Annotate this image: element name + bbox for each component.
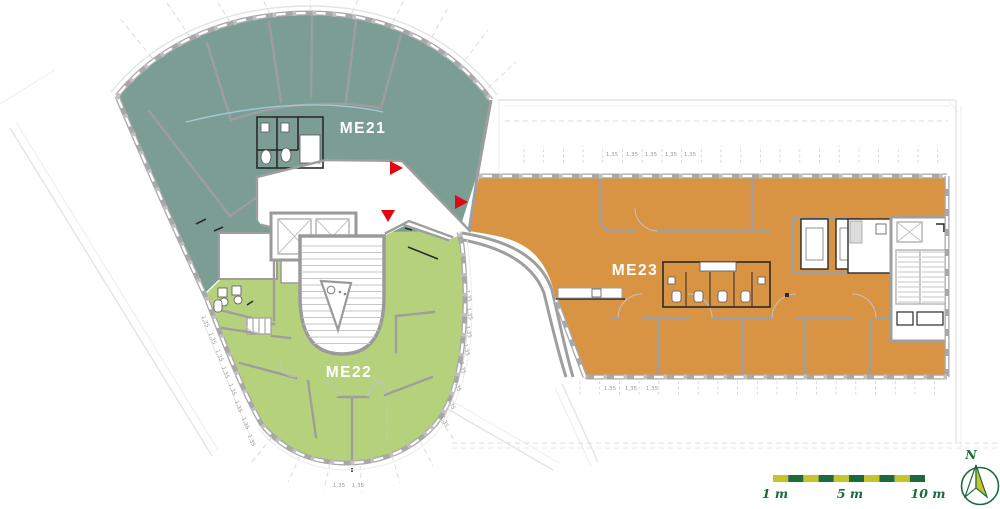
unit-me23-area[interactable] [469, 176, 947, 377]
dimension-label: 1,35 [207, 332, 217, 346]
dimension-label: 1,35 [333, 483, 346, 489]
unit-me21-label: ME21 [340, 120, 387, 137]
dimension-label: 1,35 [684, 152, 697, 158]
dimension-label: 1,35 [625, 386, 638, 392]
floor-plan-stage: 1,35 1,35 1,35 1,35 1,35 1,35 1,35 1,35 … [0, 0, 1000, 509]
north-compass: N [962, 447, 999, 505]
scale-label-1m: 1 m [762, 486, 788, 501]
stair-newel [327, 286, 335, 294]
dimension-label: 1,35 [352, 483, 365, 489]
me23-bath-room [848, 219, 893, 273]
me23-stairwell [891, 217, 947, 341]
dimension-label: 1,35 [646, 386, 659, 392]
scale-bar [773, 475, 925, 482]
dimension-label: 1,35 [240, 417, 250, 431]
scale-label-10m: 10 m [911, 486, 946, 501]
me23-kitchenette [556, 288, 625, 299]
dimension-label: 1,35 [227, 383, 237, 397]
dimension-label: 1,35 [606, 152, 619, 158]
dimension-label: 1,35 [665, 152, 678, 158]
dimension-label: 1,35 [626, 152, 639, 158]
stairwell-core [300, 236, 384, 354]
north-label: N [964, 447, 977, 462]
unit-me23-label: ME23 [612, 262, 659, 279]
me21-room-white [219, 233, 277, 279]
dimension-label: 1,35 [233, 400, 243, 414]
dimension-label: 1,35 [214, 349, 224, 363]
dimension-label: 1,35 [246, 434, 256, 448]
scale-label-5m: 5 m [837, 486, 863, 501]
dimension-label: 1,35 [645, 152, 658, 158]
dimension-label: 1,35 [220, 366, 230, 380]
unit-me22-label: ME22 [326, 364, 373, 381]
compass-needle-east [976, 465, 987, 497]
dimension-label: 1,35 [200, 315, 210, 329]
door-stop [785, 293, 789, 297]
dimension-label: 1,35 [604, 386, 617, 392]
floor-plan-canvas: 1,35 1,35 1,35 1,35 1,35 1,35 1,35 1,35 … [0, 0, 1000, 509]
